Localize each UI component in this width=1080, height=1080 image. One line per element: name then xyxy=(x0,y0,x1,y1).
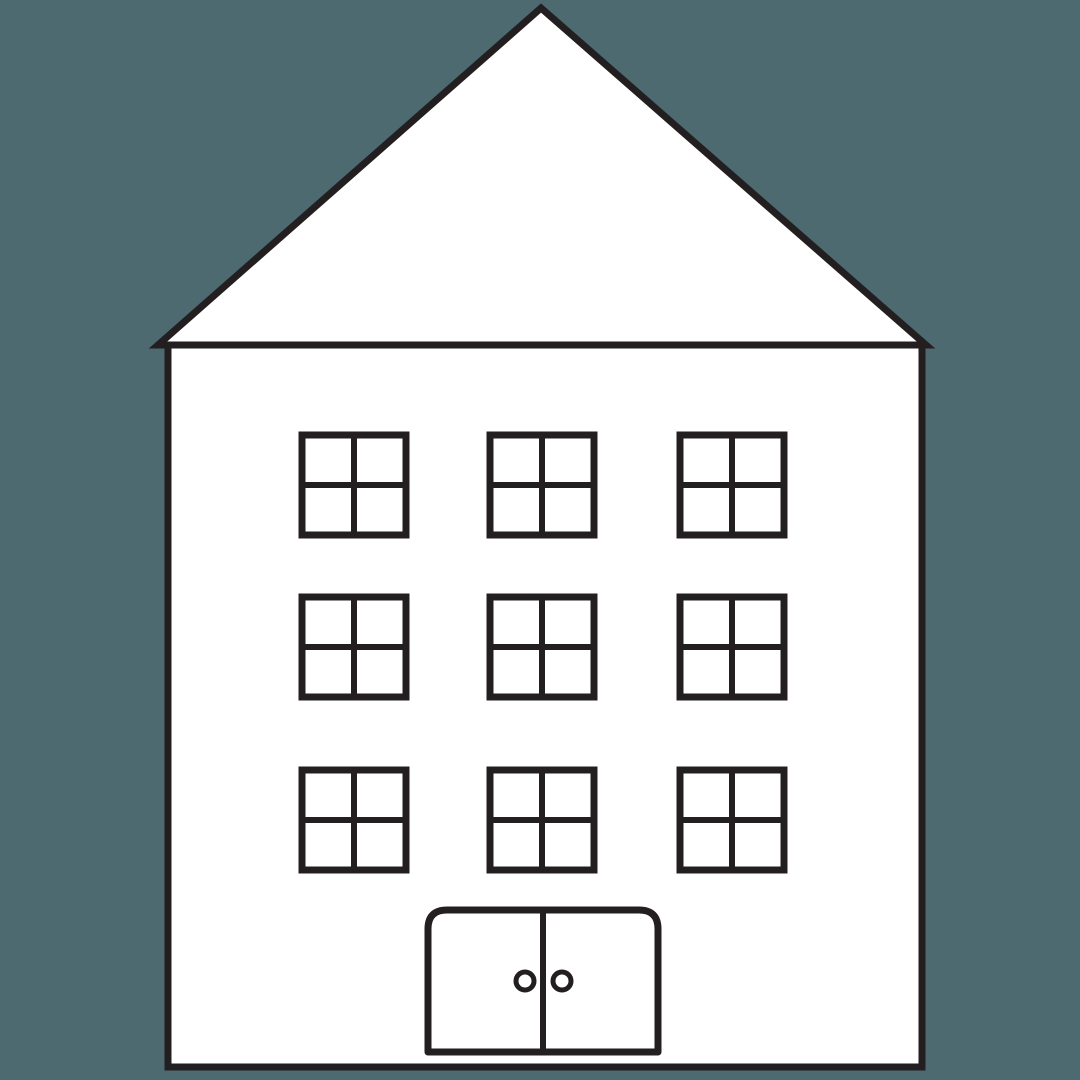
door xyxy=(428,910,658,1052)
house-illustration xyxy=(0,0,1080,1080)
windows-grid xyxy=(302,435,784,870)
window xyxy=(680,770,784,870)
window xyxy=(680,597,784,697)
window xyxy=(680,435,784,535)
window xyxy=(302,597,406,697)
window xyxy=(490,435,594,535)
door-knob xyxy=(553,972,571,990)
window xyxy=(490,597,594,697)
door-knob xyxy=(516,972,534,990)
window xyxy=(302,770,406,870)
window xyxy=(302,435,406,535)
window xyxy=(490,770,594,870)
